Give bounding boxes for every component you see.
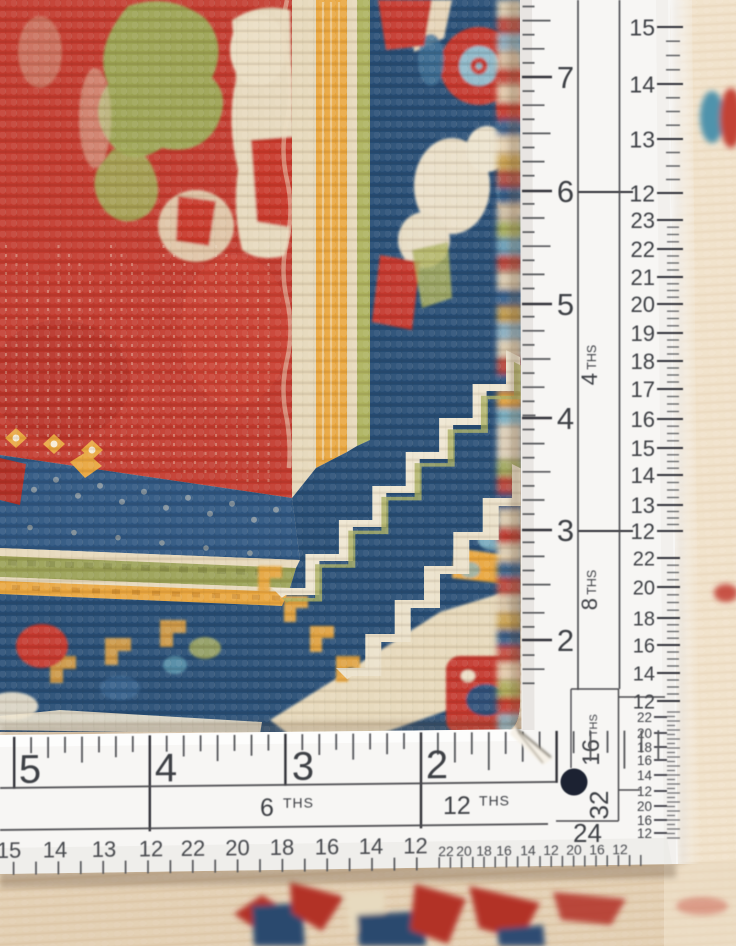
svg-text:7: 7: [557, 60, 574, 95]
svg-text:12: 12: [629, 181, 655, 207]
svg-text:22: 22: [637, 710, 652, 725]
svg-text:13: 13: [92, 837, 116, 862]
svg-text:16: 16: [589, 841, 605, 857]
svg-text:22: 22: [438, 843, 454, 859]
svg-text:22: 22: [631, 237, 655, 262]
svg-text:17: 17: [631, 377, 655, 402]
svg-text:14: 14: [359, 834, 383, 859]
svg-text:14: 14: [629, 72, 655, 98]
svg-text:32: 32: [584, 791, 614, 820]
svg-text:20: 20: [225, 835, 249, 860]
svg-text:20: 20: [456, 843, 472, 859]
svg-text:20: 20: [637, 799, 652, 814]
svg-text:21: 21: [631, 265, 655, 290]
svg-text:16: 16: [315, 834, 339, 859]
svg-text:16: 16: [637, 753, 652, 768]
svg-text:15: 15: [631, 436, 655, 461]
svg-text:13: 13: [629, 127, 655, 153]
svg-text:19: 19: [631, 321, 655, 346]
svg-text:12: 12: [637, 784, 652, 799]
svg-text:4: 4: [155, 746, 177, 790]
svg-text:14: 14: [631, 463, 655, 488]
svg-text:20: 20: [637, 726, 652, 741]
svg-text:15: 15: [629, 15, 655, 41]
svg-text:18: 18: [270, 835, 294, 860]
svg-text:12: 12: [637, 826, 652, 841]
svg-text:22: 22: [181, 836, 205, 861]
svg-text:23: 23: [631, 208, 655, 233]
svg-text:18: 18: [631, 349, 655, 374]
svg-text:12: 12: [403, 833, 427, 858]
svg-text:14: 14: [43, 837, 67, 862]
svg-text:22: 22: [633, 549, 655, 571]
svg-text:2: 2: [557, 623, 574, 658]
svg-text:6: 6: [260, 794, 274, 822]
svg-text:THS: THS: [479, 792, 510, 808]
svg-text:6: 6: [557, 174, 574, 209]
svg-text:14: 14: [637, 768, 653, 783]
svg-text:14: 14: [520, 842, 536, 858]
svg-text:20: 20: [566, 842, 582, 858]
svg-text:3: 3: [557, 513, 574, 548]
svg-text:5: 5: [19, 748, 41, 792]
svg-text:20: 20: [633, 578, 655, 600]
svg-text:18: 18: [476, 843, 492, 859]
svg-text:5: 5: [557, 287, 574, 322]
svg-text:15: 15: [0, 838, 21, 863]
svg-text:2: 2: [426, 743, 448, 787]
svg-text:18: 18: [633, 609, 655, 631]
svg-text:16: 16: [496, 842, 512, 858]
svg-text:16: 16: [631, 407, 655, 432]
svg-text:20: 20: [631, 292, 655, 317]
svg-text:14: 14: [633, 664, 655, 686]
svg-text:4: 4: [557, 401, 574, 436]
svg-text:12: 12: [139, 836, 163, 861]
svg-text:3: 3: [292, 745, 314, 789]
svg-text:16: 16: [633, 636, 655, 658]
svg-text:13: 13: [631, 493, 655, 518]
svg-text:12: 12: [631, 519, 655, 544]
svg-text:THS: THS: [283, 795, 314, 811]
svg-text:12: 12: [543, 842, 559, 858]
svg-text:12: 12: [443, 792, 471, 820]
svg-text:12: 12: [612, 841, 628, 857]
